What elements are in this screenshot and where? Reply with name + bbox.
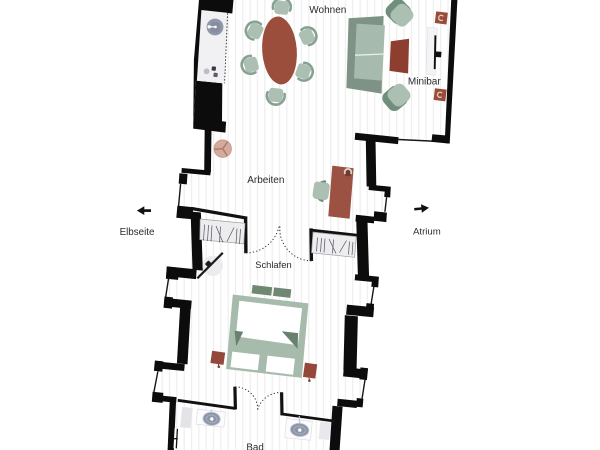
svg-text:Wohnen: Wohnen bbox=[309, 5, 346, 16]
svg-text:Arbeiten: Arbeiten bbox=[247, 175, 284, 186]
svg-text:Elbseite: Elbseite bbox=[120, 227, 155, 238]
svg-text:Bad: Bad bbox=[246, 442, 263, 450]
svg-text:Schlafen: Schlafen bbox=[255, 259, 291, 270]
svg-text:Minibar: Minibar bbox=[408, 76, 441, 87]
svg-text:Atrium: Atrium bbox=[413, 227, 441, 238]
